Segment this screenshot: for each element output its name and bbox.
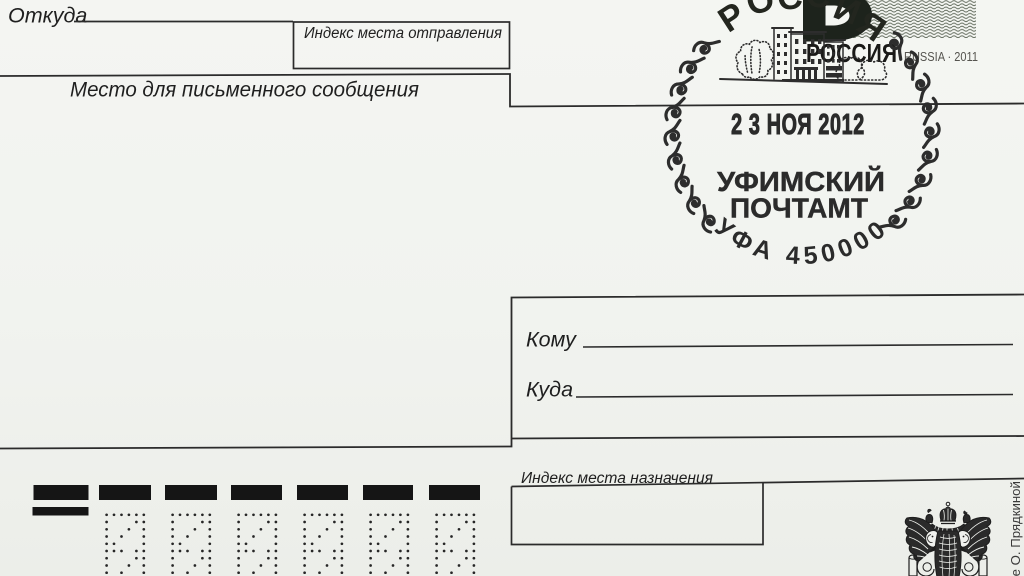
svg-text:2 3 НОЯ 2012: 2 3 НОЯ 2012 (731, 109, 865, 141)
svg-text:Откуда: Откуда (8, 4, 87, 28)
svg-text:ПОЧТАМТ: ПОЧТАМТ (730, 193, 868, 224)
svg-text:Куда: Куда (526, 378, 573, 402)
svg-text:Место для письменного сообщени: Место для письменного сообщения (70, 78, 419, 102)
svg-text:Кому: Кому (526, 328, 577, 352)
svg-text:ние О. Прядкиной: ние О. Прядкиной (1008, 481, 1023, 576)
svg-text:Индекс места отправления: Индекс места отправления (304, 25, 502, 42)
svg-text:С: С (775, 0, 804, 18)
